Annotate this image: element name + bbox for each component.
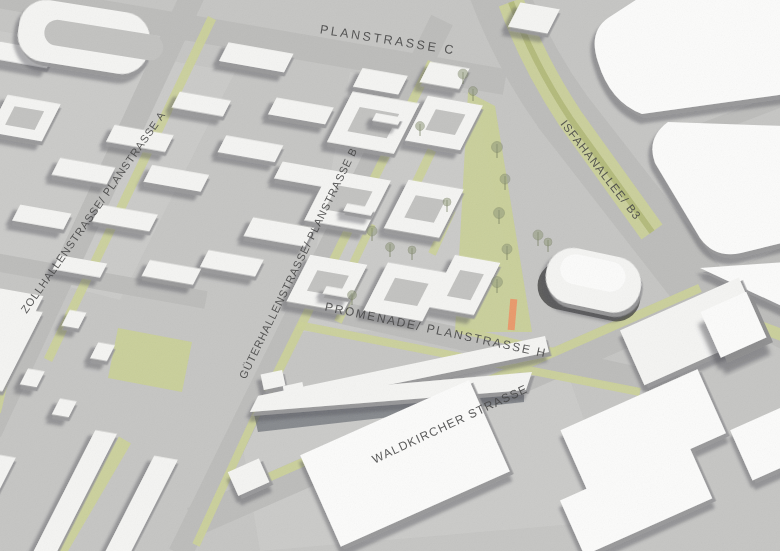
massing-model-canvas xyxy=(0,0,780,551)
paper-grain-overlay xyxy=(0,0,780,551)
site-plan-rendering: PLANSTRASSE C ZOLLHALLENSTRASSE/ PLANSTR… xyxy=(0,0,780,551)
